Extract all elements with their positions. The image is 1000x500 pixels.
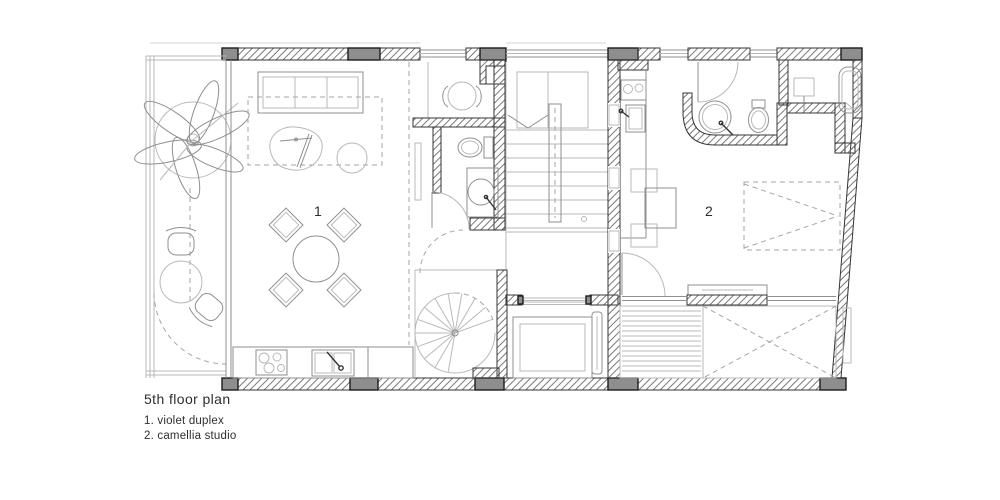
legend-item-2: 2. camellia studio (144, 429, 236, 444)
cooktop-2 (621, 80, 646, 100)
plan-title: 5th floor plan (144, 391, 236, 407)
kitchen-sink-2 (619, 105, 645, 132)
unit2-lower-wall (622, 285, 836, 305)
unit2-studio: 2 (618, 60, 861, 378)
window-top-stair (506, 50, 608, 57)
balcony-door-swing (154, 293, 226, 364)
window-top-bath2 (750, 50, 777, 57)
shower-partition (779, 60, 788, 105)
column (350, 378, 378, 390)
dining-table (293, 236, 339, 282)
column (480, 48, 506, 60)
bathroom-2-door (698, 62, 738, 102)
bathroom-1 (413, 60, 505, 273)
room-label-1: 1 (314, 203, 322, 219)
kitchen-sink-1 (312, 350, 354, 376)
column (820, 378, 846, 390)
core-right-wall (608, 60, 620, 378)
room-label-2: 2 (705, 203, 713, 219)
column (841, 48, 862, 60)
elevator (506, 295, 618, 378)
kitchen-counter-1 (233, 347, 413, 378)
bed-void-dashed (744, 182, 840, 250)
stair-treads (506, 130, 608, 228)
balcony-chair-north (166, 228, 196, 256)
toilet-2 (749, 100, 769, 133)
caption: 5th floor plan 1. violet duplex 2. camel… (144, 391, 236, 444)
floor-plan-sheet: 1 (0, 0, 1000, 500)
legend-item-1: 1. violet duplex (144, 414, 236, 429)
bathroom-1-door (432, 192, 469, 229)
round-basin (699, 101, 733, 135)
staircase (506, 62, 608, 270)
glass-wall (226, 60, 231, 378)
column (222, 378, 238, 390)
deck-terrace (620, 306, 703, 378)
window-top-kitchen (660, 50, 688, 57)
curved-wall (683, 93, 777, 145)
balcony-terrace (133, 56, 253, 378)
balcony-chair-south (187, 289, 228, 329)
toilet-1 (458, 137, 493, 158)
stair-break-line (508, 115, 548, 128)
rug-outline (248, 97, 382, 165)
elevator-car (513, 317, 592, 378)
elevator-doors (518, 296, 591, 305)
exterior-walls (222, 48, 862, 390)
door-swing-dashed (420, 230, 463, 273)
void-open-below (703, 306, 836, 378)
desk-and-chairs (631, 169, 676, 247)
potted-plant (133, 78, 253, 202)
bathtub (839, 67, 861, 113)
column (608, 378, 638, 390)
dining-set (269, 208, 361, 307)
service-core (409, 60, 620, 378)
column (222, 48, 238, 60)
side-table (337, 143, 367, 173)
vanity-sink-1 (467, 168, 498, 217)
column (348, 48, 380, 60)
sliding-door-panel (415, 143, 421, 200)
bathroom-2 (683, 60, 855, 153)
unit2-entry-door (622, 253, 665, 296)
armchair (443, 82, 482, 110)
spiral-staircase (415, 270, 507, 378)
window-top-1 (420, 50, 466, 57)
balcony-railing (146, 56, 226, 378)
coffee-table (270, 127, 322, 170)
balcony-table (160, 261, 202, 303)
column (608, 48, 638, 60)
elevator-counterweight (592, 312, 602, 374)
stair-handrail (549, 104, 561, 222)
sofa (258, 72, 363, 113)
unit1-living-room: 1 (226, 60, 413, 378)
kitchenette-2 (618, 60, 648, 238)
cooktop-1 (256, 350, 287, 375)
column (475, 378, 504, 390)
